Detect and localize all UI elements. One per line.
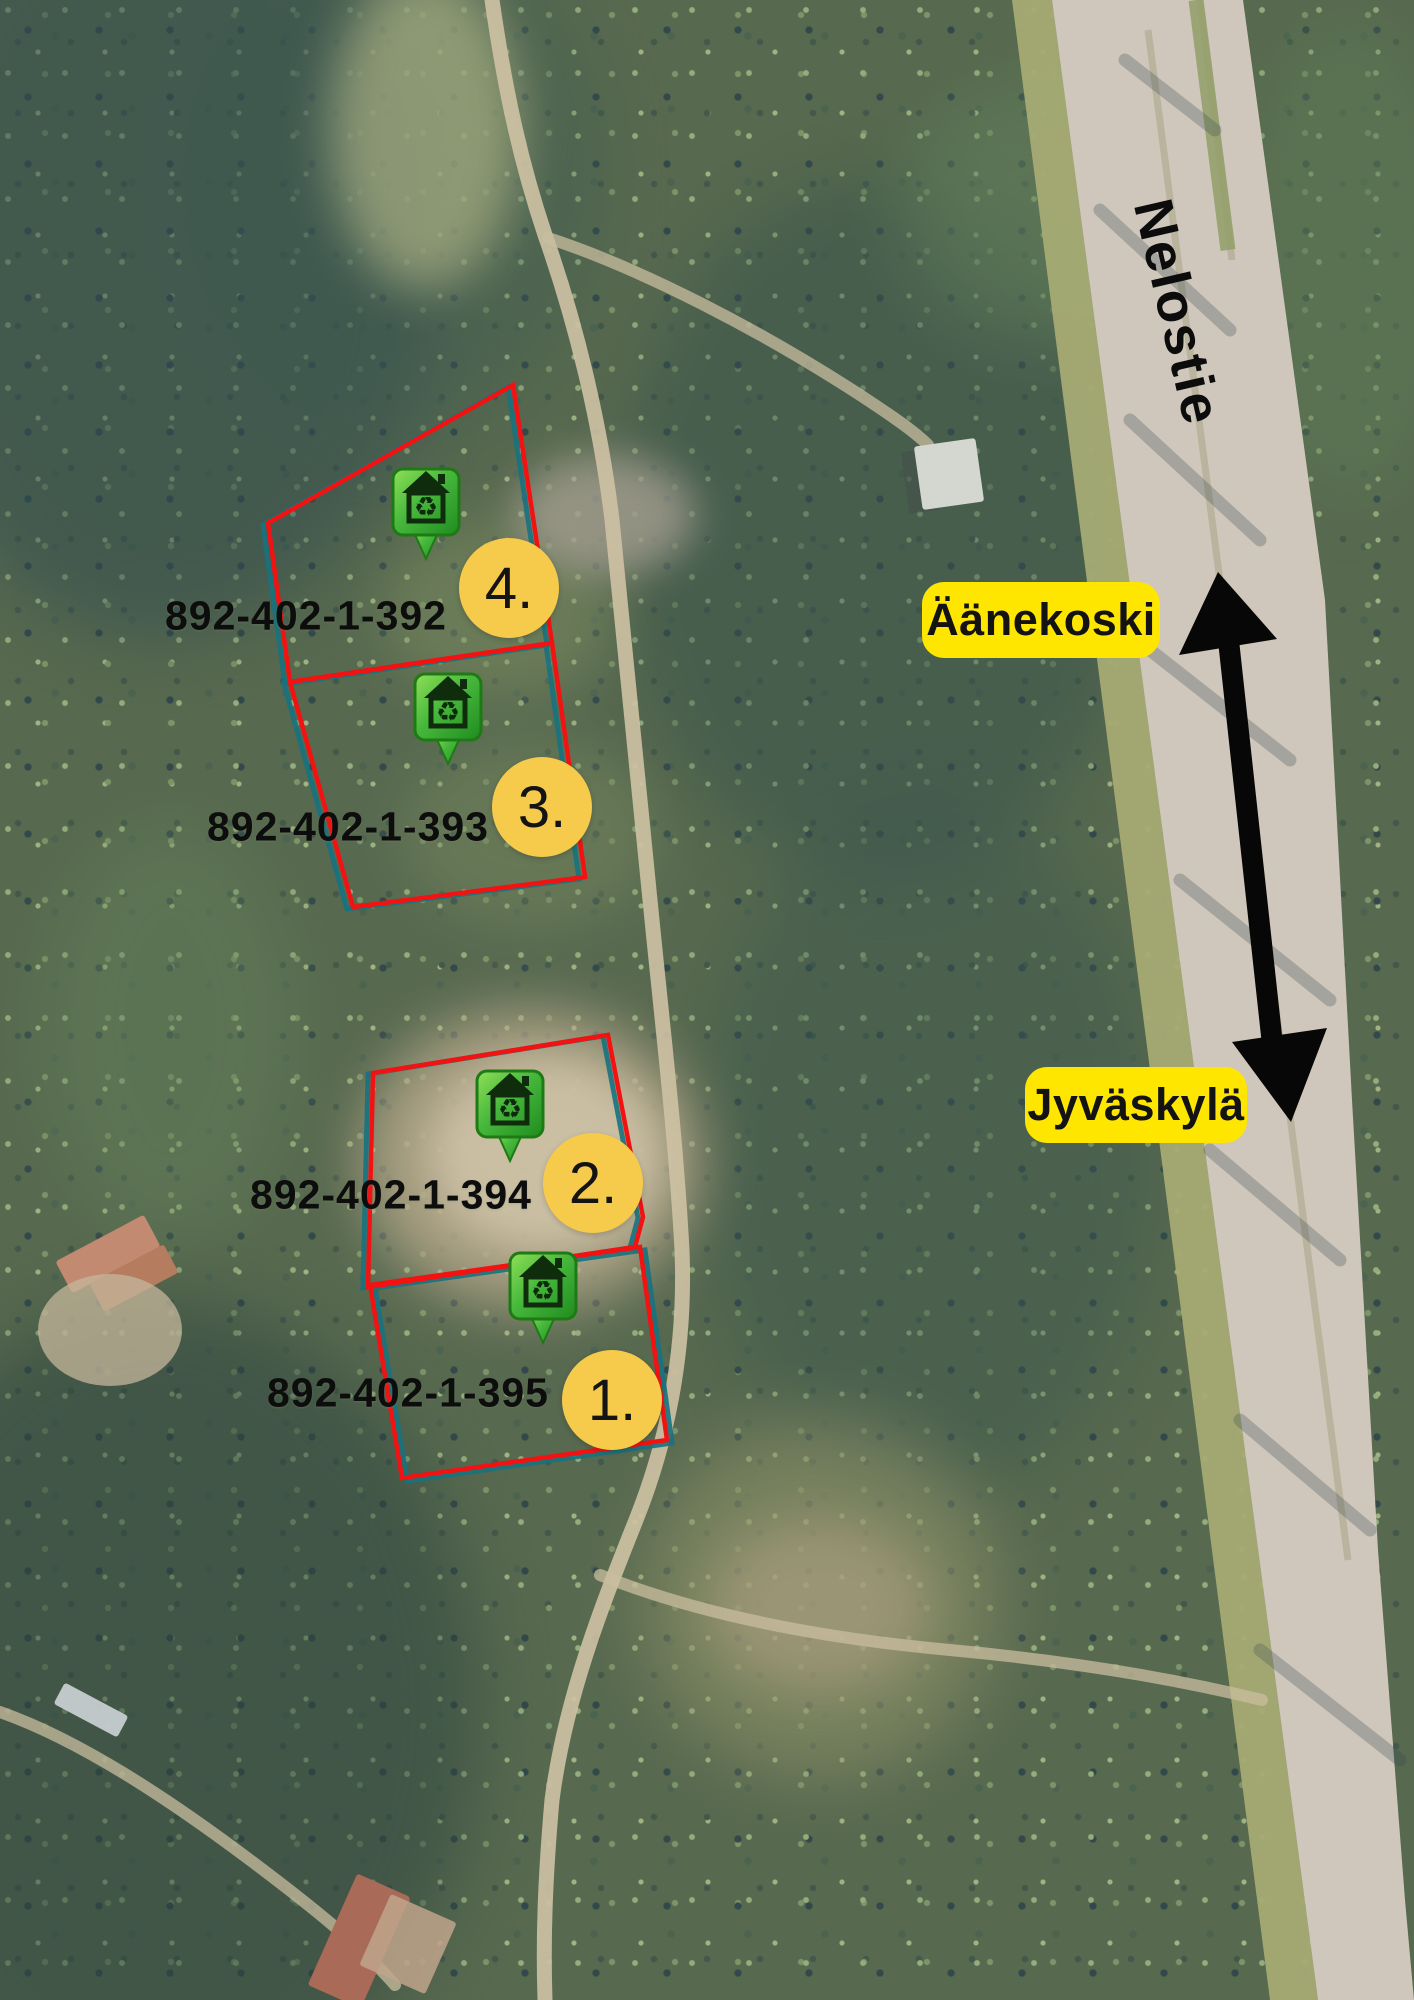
aerial-map: ♻ ♻ ♻ ♻ (0, 0, 1414, 2000)
building-roof-grey (914, 438, 984, 510)
yard-clearing (38, 1274, 182, 1386)
recycle-icon: ♻ (498, 1094, 522, 1124)
house-chimney-icon (460, 679, 467, 689)
house-chimney-icon (555, 1258, 562, 1268)
eco-house-marker-1[interactable]: ♻ (510, 1253, 576, 1343)
recycle-icon: ♻ (414, 492, 438, 522)
house-chimney-icon (438, 474, 445, 484)
eco-house-marker-3[interactable]: ♻ (415, 674, 481, 764)
recycle-icon: ♻ (436, 697, 460, 727)
eco-house-marker-4[interactable]: ♻ (393, 469, 459, 559)
recycle-icon: ♻ (531, 1276, 555, 1306)
house-chimney-icon (522, 1076, 529, 1086)
destination-label-jyvaskyla: Jyväskylä (1025, 1067, 1247, 1143)
eco-house-marker-2[interactable]: ♻ (477, 1071, 543, 1161)
parcel-number-badge-4[interactable]: 4. (459, 538, 559, 638)
parcel-number-badge-2[interactable]: 2. (543, 1133, 643, 1233)
main-dirt-road (492, 0, 683, 2000)
parcel-number-badge-3[interactable]: 3. (492, 757, 592, 857)
parcel-id-label-395: 892-402-1-395 (267, 1370, 549, 1417)
parcel-id-label-394: 892-402-1-394 (250, 1172, 532, 1219)
parcel-id-label-392: 892-402-1-392 (165, 593, 447, 640)
destination-label-aanekoski: Äänekoski (922, 582, 1160, 658)
building-roof-small (54, 1683, 129, 1738)
parcel-id-label-393: 892-402-1-393 (207, 804, 489, 851)
parcel-number-badge-1[interactable]: 1. (562, 1350, 662, 1450)
